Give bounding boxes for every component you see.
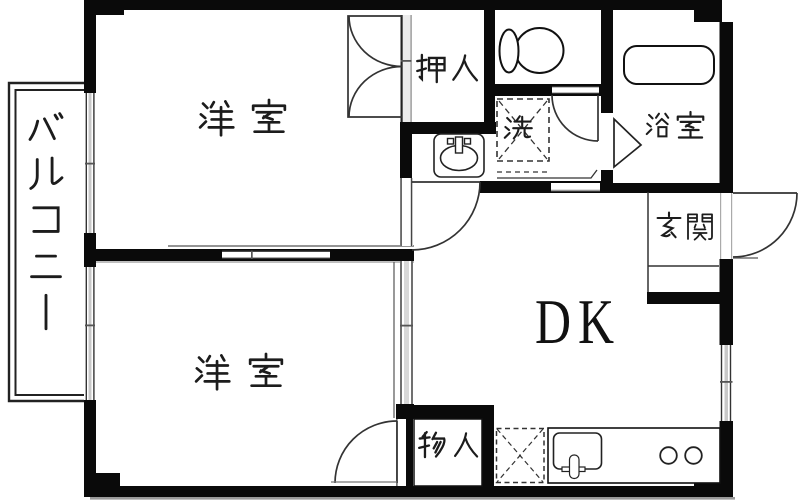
- svg-text:DK: DK: [535, 287, 621, 357]
